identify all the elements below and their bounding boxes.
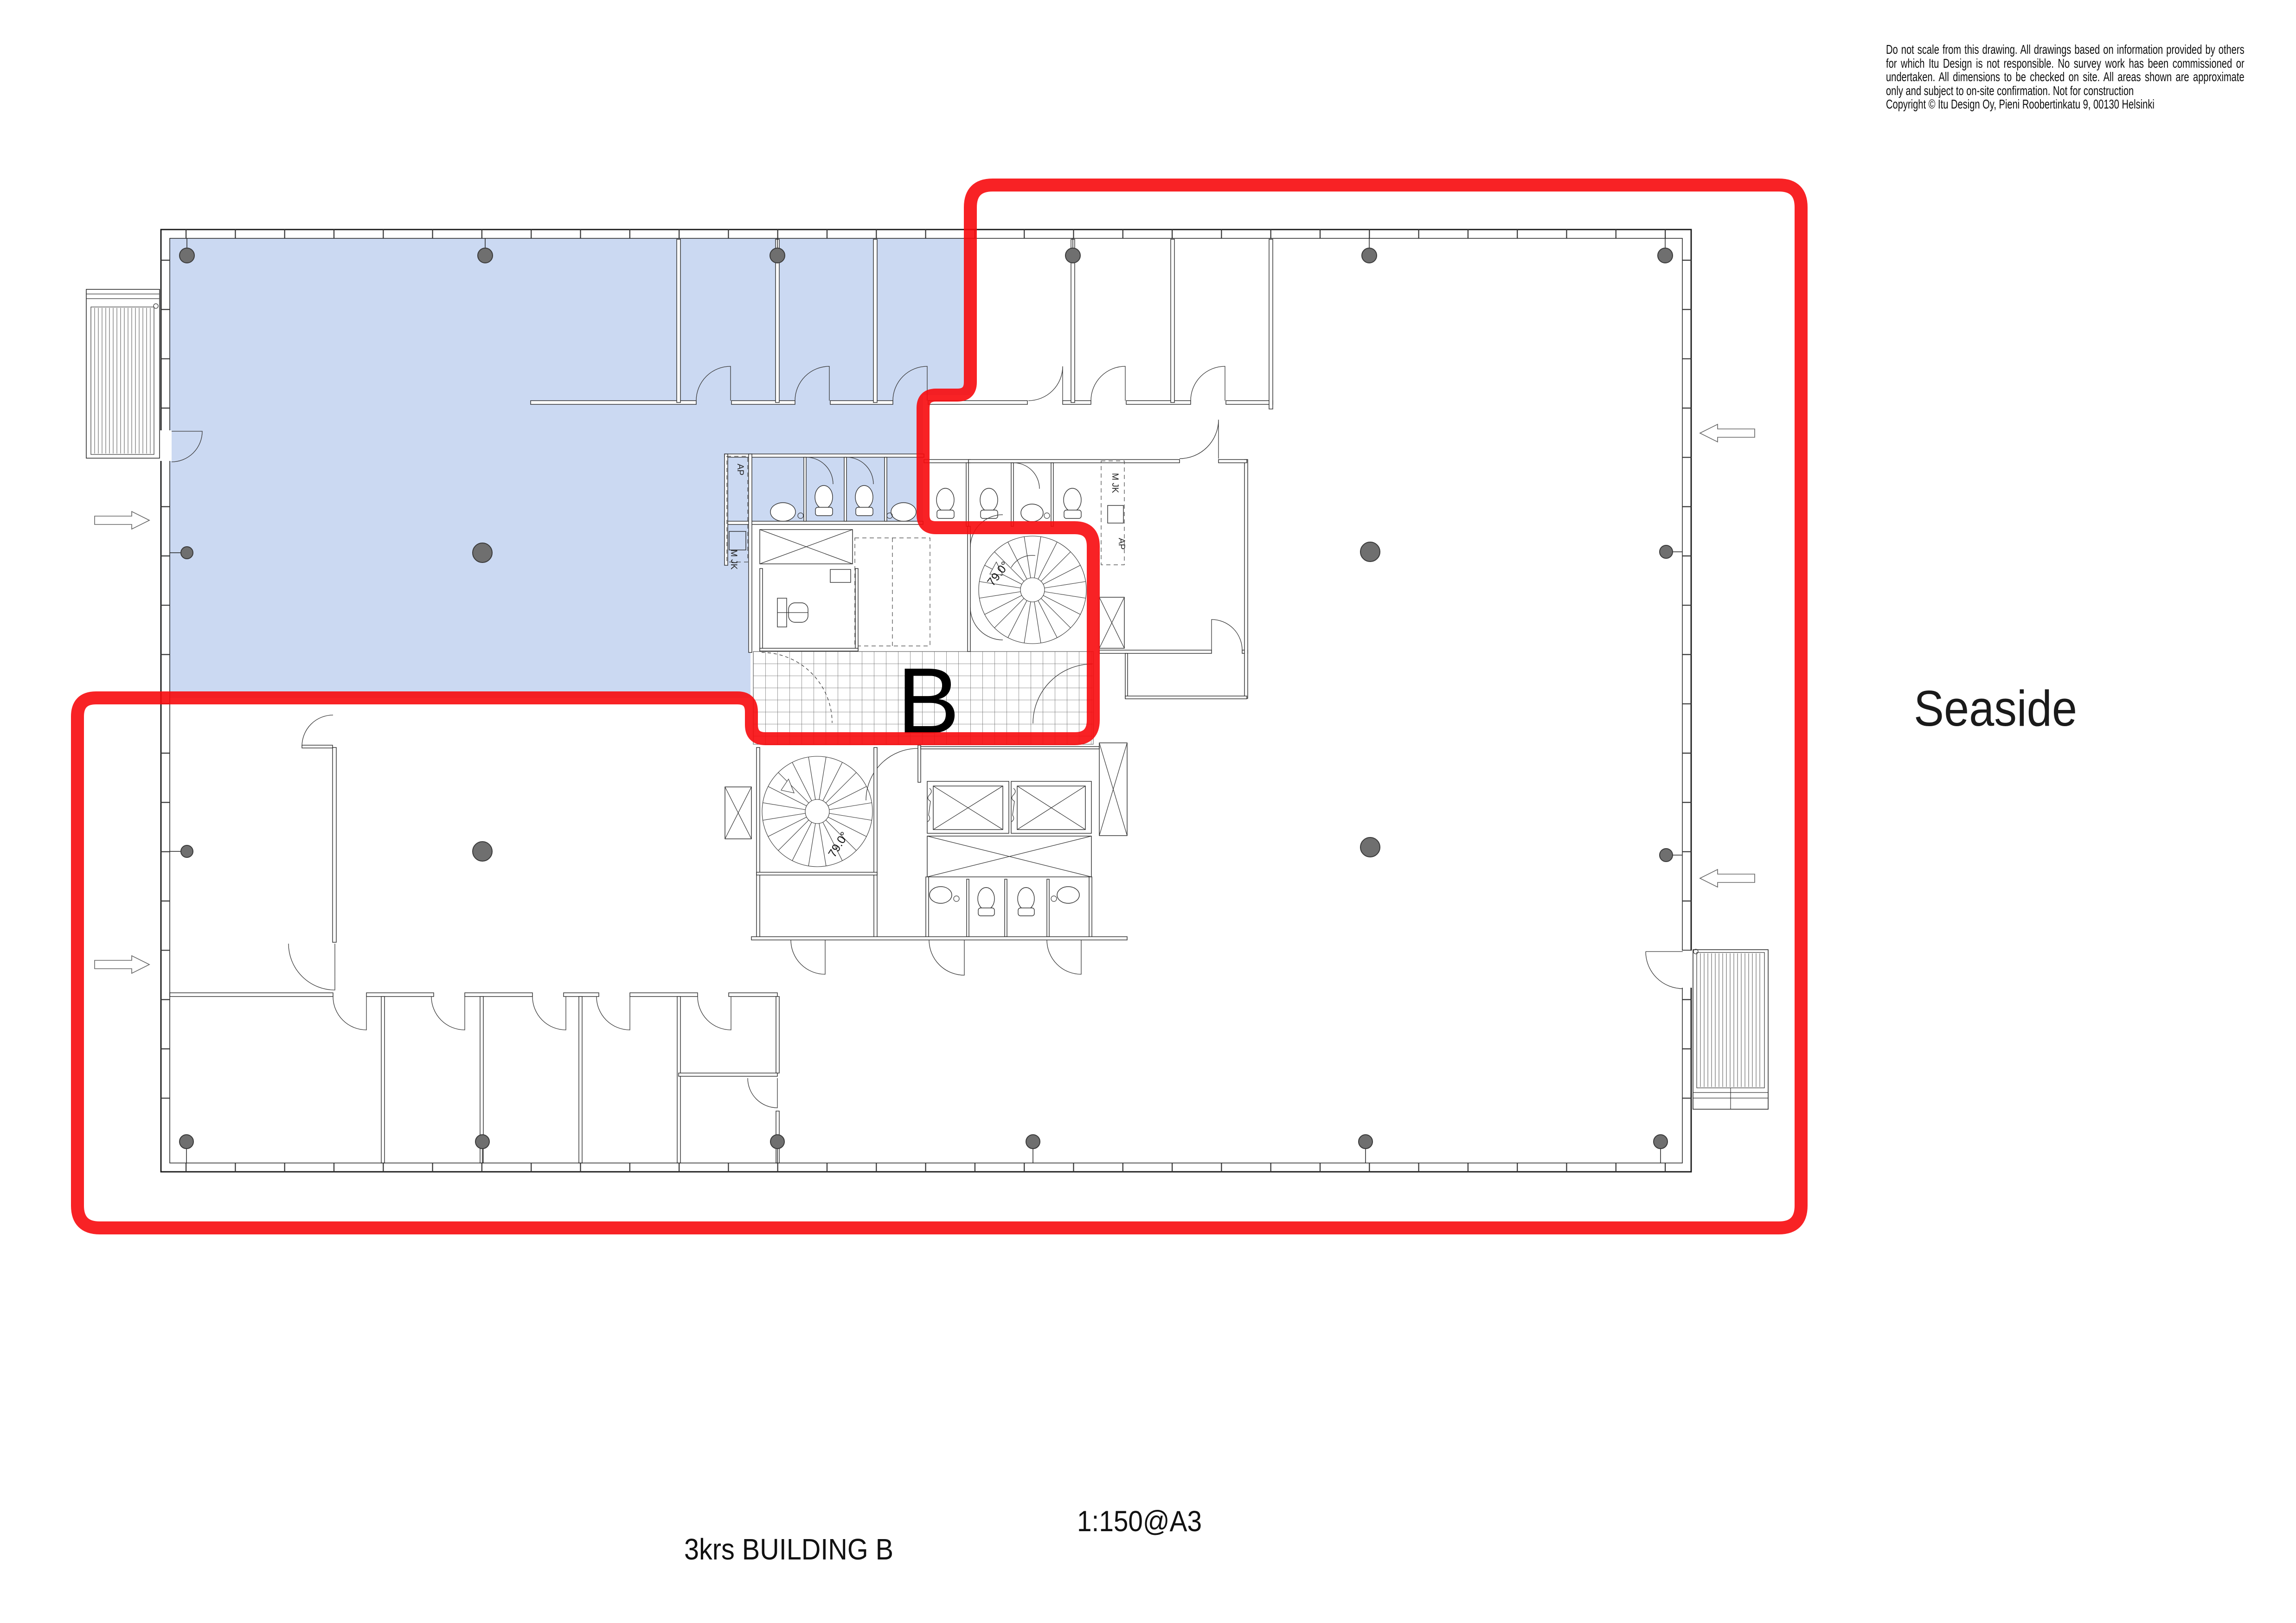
svg-text:M JK: M JK <box>729 550 738 570</box>
svg-text:1:150@A3: 1:150@A3 <box>1077 1505 1202 1538</box>
svg-text:79.0°: 79.0° <box>985 559 1012 588</box>
svg-text:Seaside: Seaside <box>1914 680 2077 737</box>
svg-text:AP: AP <box>1116 538 1126 550</box>
svg-text:79.0°: 79.0° <box>826 830 851 860</box>
svg-text:3krs BUILDING B: 3krs BUILDING B <box>684 1533 893 1566</box>
svg-text:M JK: M JK <box>1110 473 1120 493</box>
svg-text:AP: AP <box>735 464 745 475</box>
